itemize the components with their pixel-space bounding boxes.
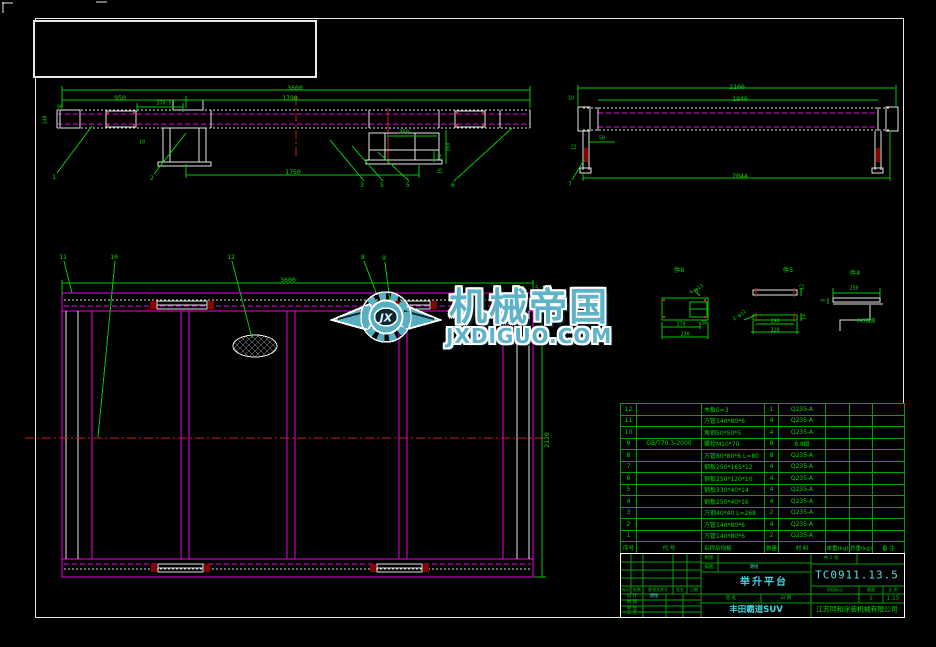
- bom-cell: 钢板250*120*10: [702, 473, 765, 484]
- bom-cell: 4: [765, 519, 779, 530]
- tb-label-change-doc: 更改文件号: [648, 588, 668, 592]
- bom-cell: [873, 416, 904, 427]
- tb-label-design: 设 计: [627, 595, 637, 600]
- bom-cell: 3: [621, 508, 637, 519]
- bom-cell: [826, 485, 850, 496]
- bom-cell: [826, 508, 850, 519]
- bom-row: 8方管80*80*6 L=808Q235-A: [621, 450, 904, 462]
- bom-cell: 2: [621, 519, 637, 530]
- watermark: JX 机械帝国 JXDIGUO.COM: [330, 284, 612, 350]
- bom-cell: 方管140*80*6: [702, 416, 765, 427]
- bom-cell: Q235-A: [779, 531, 826, 542]
- bom-row: 6钢板250*120*104Q235-A: [621, 473, 904, 485]
- bom-cell: 2: [765, 508, 779, 519]
- bom-cell: Q235-A: [779, 473, 826, 484]
- bom-cell: 1: [765, 404, 779, 415]
- bom-cell: [873, 531, 904, 542]
- bom-row: 4钢板250*40*164Q235-A: [621, 496, 904, 508]
- tb-part-title: 举升平台: [740, 578, 788, 588]
- bom-cell: Q235-A: [779, 450, 826, 461]
- bom-cell: [850, 416, 873, 427]
- bom-cell: 8.8级: [779, 439, 826, 450]
- bom-cell: Q235-A: [779, 404, 826, 415]
- tb-label-trace: 描图: [705, 565, 714, 570]
- bom-cell: 角钢50*50*5: [702, 427, 765, 438]
- bom-cell: [850, 531, 873, 542]
- bom-cell: [873, 508, 904, 519]
- bom-cell: 8: [765, 439, 779, 450]
- bom-cell: GB/T70.3-2000: [637, 439, 702, 450]
- bom-cell: [873, 519, 904, 530]
- bom-cell: [637, 531, 702, 542]
- bom-cell: 钢板250*165*12: [702, 462, 765, 473]
- tb-company: 江苏同和涂装机械有限公司: [816, 607, 898, 614]
- bom-cell: 12: [621, 404, 637, 415]
- bom-cell: [850, 519, 873, 530]
- bom-cell: 5: [621, 485, 637, 496]
- bom-cell: [637, 473, 702, 484]
- bom-cell: [850, 473, 873, 484]
- cad-canvas: 36009501790370.5901401017503503687416123…: [0, 0, 936, 647]
- bom-cell: [850, 427, 873, 438]
- bom-table: 12木板δ=31Q235-A11方管140*80*64Q235-A10角钢50*…: [620, 403, 905, 555]
- bom-cell: [873, 450, 904, 461]
- bom-row: 11方管140*80*64Q235-A: [621, 416, 904, 428]
- bom-cell: [826, 427, 850, 438]
- bom-cell: 1: [621, 531, 637, 542]
- watermark-brand: 机械帝国: [449, 288, 609, 326]
- bom-cell: [850, 485, 873, 496]
- bom-row: 5钢板330*40*144Q235-A: [621, 485, 904, 497]
- tb-weight-value: 1: [869, 596, 873, 602]
- title-block: 标记 处数 更改文件号 签名 日期 设 计 制 图 审 核 工 艺 测绘 制图 …: [620, 553, 905, 618]
- bom-cell: Q235-A: [779, 462, 826, 473]
- bom-cell: 2: [765, 531, 779, 542]
- bom-cell: Q235-A: [779, 485, 826, 496]
- bom-row: 10角钢50*50*54Q235-A: [621, 427, 904, 439]
- bom-cell: [873, 496, 904, 507]
- bom-cell: 4: [765, 496, 779, 507]
- bom-row: 12木板δ=31Q235-A: [621, 404, 904, 416]
- bom-cell: [826, 473, 850, 484]
- bom-cell: [826, 531, 850, 542]
- bom-cell: 方管140*80*6: [702, 519, 765, 530]
- bom-row: 7钢板250*165*124Q235-A: [621, 462, 904, 474]
- bom-cell: [873, 439, 904, 450]
- bom-cell: [637, 462, 702, 473]
- bom-cell: [637, 427, 702, 438]
- bom-cell: 8: [765, 450, 779, 461]
- bom-cell: 方管140*80*6: [702, 531, 765, 542]
- tb-drafter-signature: 测绘: [650, 595, 659, 600]
- bom-cell: Q235-A: [779, 508, 826, 519]
- bom-cell: [850, 496, 873, 507]
- bom-cell: 木板δ=3: [702, 404, 765, 415]
- bom-cell: 4: [765, 485, 779, 496]
- bom-cell: [873, 485, 904, 496]
- bom-cell: 11: [621, 416, 637, 427]
- bom-cell: [873, 427, 904, 438]
- bom-cell: 钢板250*40*16: [702, 496, 765, 507]
- tb-label-plot: 制图: [705, 556, 714, 561]
- bom-cell: [873, 473, 904, 484]
- tb-drawing-number: TC0911.13.5: [815, 570, 899, 581]
- logo-jx-text: JX: [378, 312, 393, 325]
- bom-cell: [850, 404, 873, 415]
- bom-cell: 7: [621, 462, 637, 473]
- tb-label-mark: 标记: [622, 588, 630, 592]
- watermark-domain: JXDIGUO.COM: [446, 326, 612, 347]
- tb-label-sign2: 签 名: [726, 596, 736, 601]
- bom-cell: 4: [765, 473, 779, 484]
- bom-cell: [873, 404, 904, 415]
- bom-cell: 9: [621, 439, 637, 450]
- bom-cell: [850, 439, 873, 450]
- bom-cell: Q235-A: [779, 416, 826, 427]
- bom-cell: 4: [765, 427, 779, 438]
- bom-cell: [637, 404, 702, 415]
- bom-cell: 4: [621, 496, 637, 507]
- jxdiguo-logo: JX: [330, 284, 442, 350]
- bom-cell: 螺栓M10*70: [702, 439, 765, 450]
- bom-cell: [826, 439, 850, 450]
- tb-label-date: 日期: [690, 588, 698, 592]
- bom-cell: Q235-A: [779, 427, 826, 438]
- bom-cell: 4: [765, 416, 779, 427]
- bom-cell: [637, 508, 702, 519]
- bom-row: 3方钢40*40 L=2682Q235-A: [621, 508, 904, 520]
- bom-cell: 4: [765, 462, 779, 473]
- bom-cell: 方管80*80*6 L=80: [702, 450, 765, 461]
- bom-cell: Q235-A: [779, 496, 826, 507]
- bom-row: 1方管140*80*62Q235-A: [621, 531, 904, 543]
- tb-label-weight: 重量: [867, 588, 875, 592]
- bom-cell: [850, 462, 873, 473]
- bom-cell: [826, 450, 850, 461]
- bom-cell: [826, 462, 850, 473]
- bom-cell: 钢板330*40*14: [702, 485, 765, 496]
- bom-row: 2方管140*80*64Q235-A: [621, 519, 904, 531]
- bom-cell: [873, 462, 904, 473]
- tb-label-stage: 阶段标记: [827, 588, 843, 592]
- bom-cell: [826, 416, 850, 427]
- bom-cell: 10: [621, 427, 637, 438]
- tb-trace-signature: 测绘: [750, 565, 759, 570]
- bom-cell: [637, 519, 702, 530]
- bom-cell: 方钢40*40 L=268: [702, 508, 765, 519]
- tb-label-scale: 比 例: [888, 588, 897, 592]
- tb-label-count: 处数: [633, 588, 641, 592]
- bom-cell: 6: [621, 473, 637, 484]
- bom-cell: [637, 450, 702, 461]
- tb-scale-value: 1:15: [887, 596, 899, 602]
- tb-label-process: 工 艺: [627, 612, 637, 617]
- bom-cell: [637, 496, 702, 507]
- bom-cell: [826, 496, 850, 507]
- tb-label-signature: 签名: [676, 588, 684, 592]
- tb-label-draft: 制 图: [627, 601, 637, 606]
- bom-cell: [637, 485, 702, 496]
- tb-sheets: 共 1 张: [824, 557, 839, 562]
- bom-cell: [826, 519, 850, 530]
- bom-cell: [826, 404, 850, 415]
- tb-label-date2: 日 期: [781, 596, 791, 601]
- bom-cell: [637, 416, 702, 427]
- bom-row: 9GB/T70.3-2000螺栓M10*7088.8级: [621, 439, 904, 451]
- bom-cell: 8: [621, 450, 637, 461]
- bom-cell: [850, 508, 873, 519]
- bom-cell: [850, 450, 873, 461]
- tb-vehicle: 丰田霸道SUV: [729, 606, 783, 615]
- bom-cell: Q235-A: [779, 519, 826, 530]
